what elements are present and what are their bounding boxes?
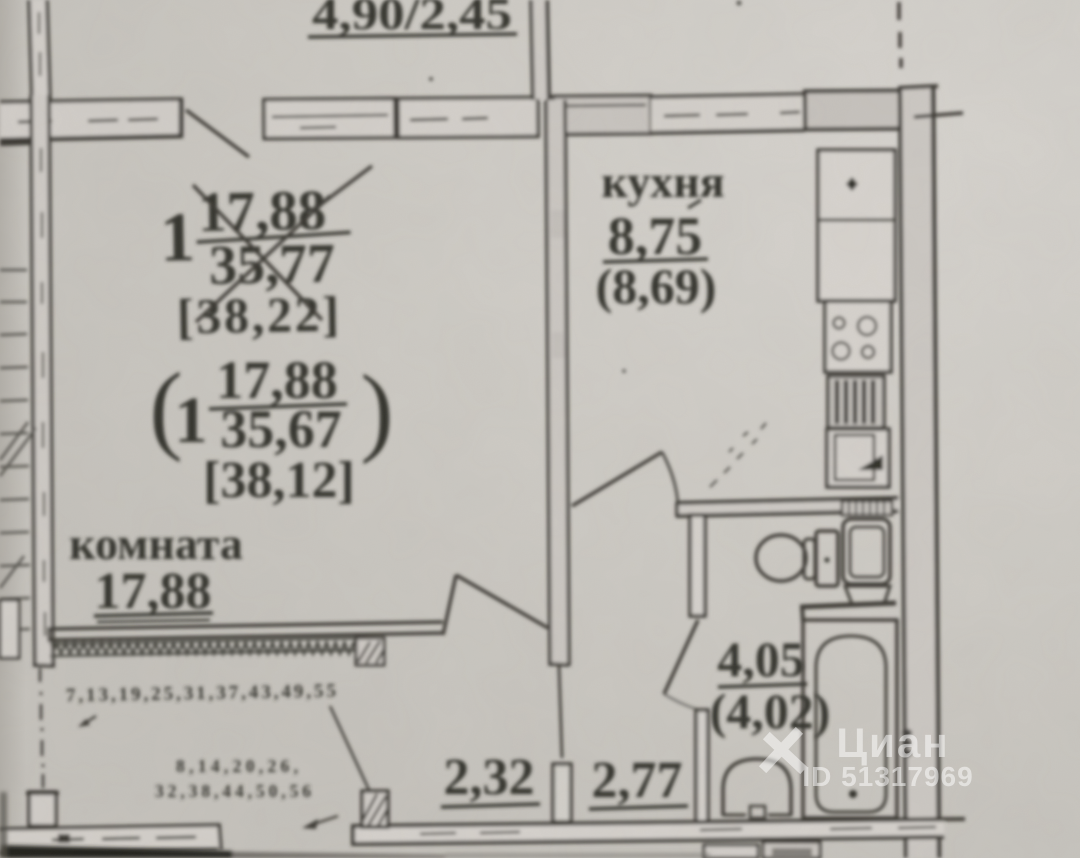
svg-text:ID 51317969: ID 51317969: [802, 761, 973, 792]
svg-text:Циан: Циан: [836, 719, 949, 766]
